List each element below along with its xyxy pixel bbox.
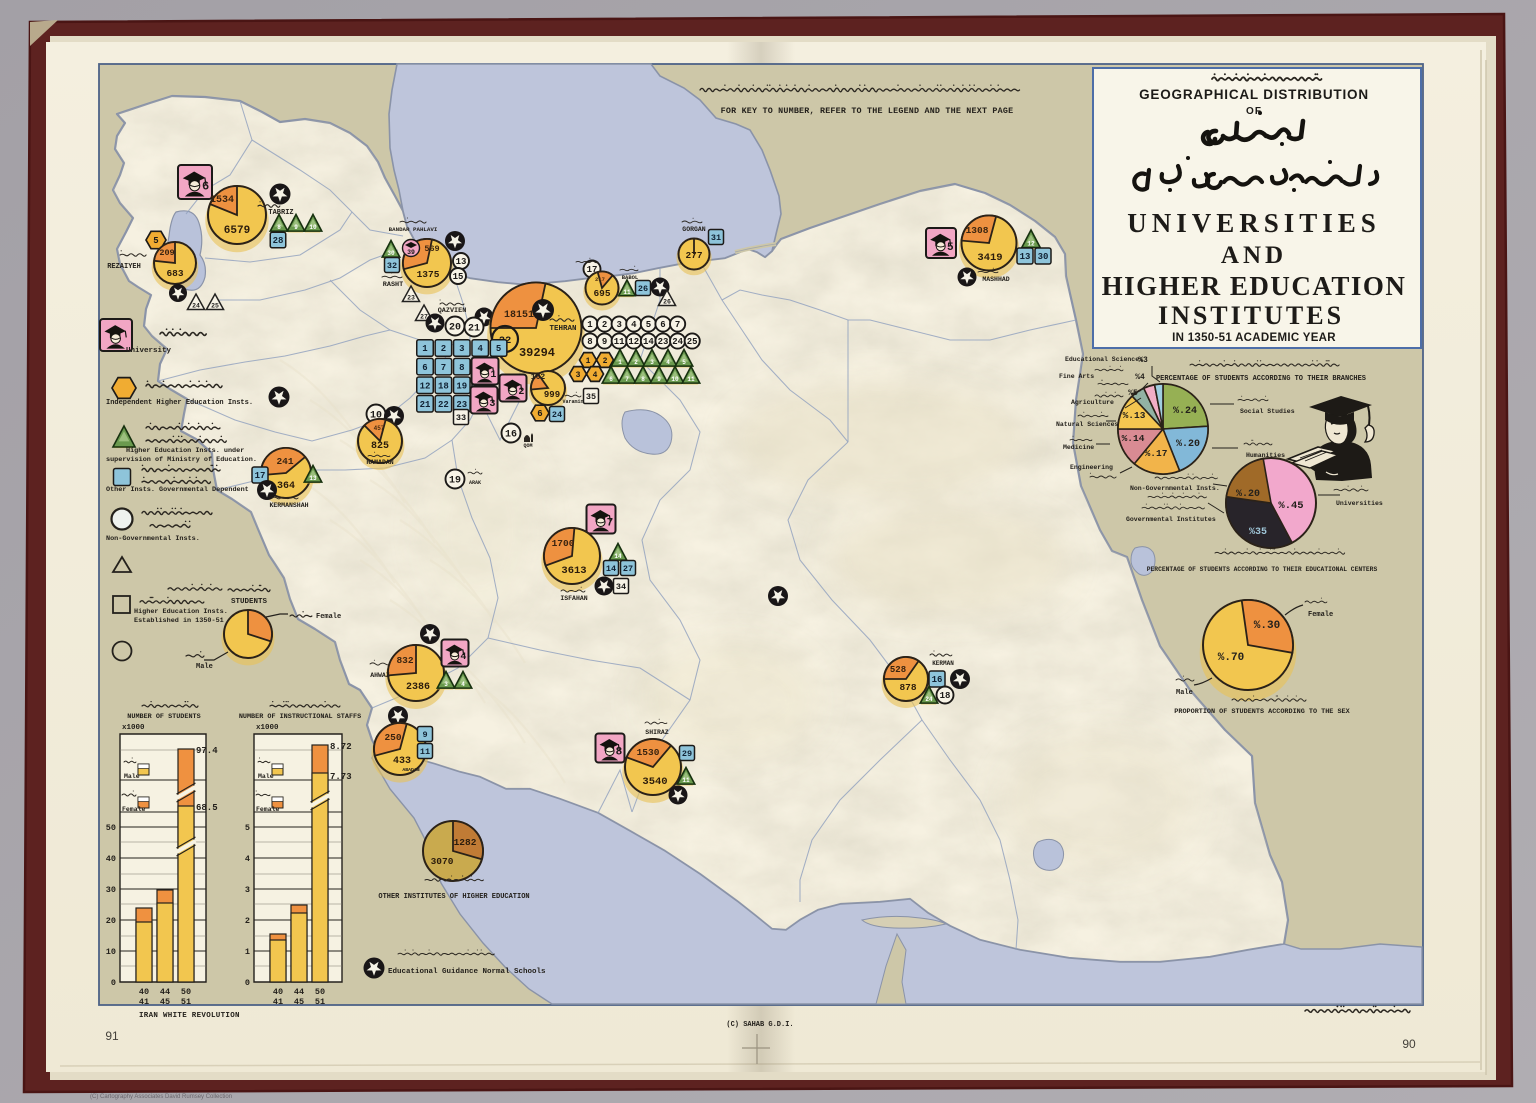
svg-text:6: 6 [537, 409, 542, 419]
svg-text:7: 7 [441, 363, 446, 373]
svg-text:23: 23 [456, 400, 467, 410]
svg-text:%.14: %.14 [1122, 433, 1145, 444]
svg-text:30: 30 [1038, 252, 1049, 262]
svg-text:6579: 6579 [224, 225, 250, 237]
svg-text:12: 12 [1027, 241, 1035, 248]
svg-text:Educational Guidance Normal Sc: Educational Guidance Normal Schools [388, 968, 546, 976]
svg-text:8: 8 [641, 376, 645, 383]
svg-text:33: 33 [456, 413, 466, 423]
svg-text:364: 364 [277, 481, 295, 492]
svg-text:2: 2 [634, 359, 638, 366]
svg-text:1375: 1375 [417, 269, 440, 280]
svg-text:QOM: QOM [523, 443, 532, 449]
svg-text:%5: %5 [1128, 389, 1138, 398]
svg-text:24: 24 [672, 337, 683, 347]
svg-text:7: 7 [675, 320, 680, 330]
svg-text:1530: 1530 [637, 747, 660, 758]
svg-text:1308: 1308 [966, 225, 989, 236]
svg-text:3: 3 [576, 371, 581, 380]
svg-text:1: 1 [618, 359, 622, 366]
svg-text:41: 41 [273, 997, 283, 1007]
svg-text:%.30: %.30 [1254, 620, 1280, 632]
svg-text:6: 6 [609, 376, 613, 383]
svg-text:878: 878 [899, 682, 916, 693]
svg-text:Female: Female [1308, 611, 1333, 619]
svg-text:6: 6 [202, 180, 209, 194]
svg-text:KERMANSHAH: KERMANSHAH [269, 502, 308, 509]
svg-text:0: 0 [245, 978, 250, 988]
svg-text:277: 277 [685, 250, 702, 261]
svg-text:Female: Female [256, 806, 280, 813]
svg-text:2386: 2386 [406, 682, 430, 693]
svg-text:1282: 1282 [454, 837, 477, 848]
svg-text:20: 20 [449, 323, 461, 334]
svg-text:REZAIYEH: REZAIYEH [107, 263, 141, 271]
svg-text:18151: 18151 [504, 310, 534, 321]
svg-text:Non-Governmental Insts.: Non-Governmental Insts. [106, 535, 200, 543]
svg-text:INSTITUTES: INSTITUTES [1158, 301, 1344, 330]
svg-text:%4: %4 [1135, 373, 1145, 382]
svg-text:7: 7 [607, 518, 614, 530]
svg-text:12: 12 [420, 381, 431, 391]
svg-text:8.72: 8.72 [330, 742, 352, 752]
svg-text:OTHER INSTITUTES OF HIGHER EDU: OTHER INSTITUTES OF HIGHER EDUCATION [378, 893, 529, 901]
svg-text:UNIVERSITIES: UNIVERSITIES [1127, 208, 1381, 238]
svg-text:3: 3 [444, 681, 448, 688]
svg-text:825: 825 [371, 441, 389, 452]
svg-text:GORGAN: GORGAN [682, 226, 706, 233]
svg-text:Universities: Universities [1336, 500, 1383, 507]
svg-text:11: 11 [623, 289, 631, 296]
svg-text:Educational Sciences: Educational Sciences [1065, 356, 1143, 363]
svg-text:2: 2 [603, 357, 608, 366]
svg-text:0: 0 [111, 978, 116, 988]
svg-text:8: 8 [459, 363, 464, 373]
svg-text:Higher Education Insts. under: Higher Education Insts. under [126, 447, 244, 455]
svg-text:4: 4 [631, 320, 637, 330]
svg-text:26: 26 [638, 284, 648, 294]
svg-text:BANDAR PAHLAVI: BANDAR PAHLAVI [389, 226, 438, 233]
svg-text:Fine Arts: Fine Arts [1059, 373, 1094, 380]
svg-text:TABRIZ: TABRIZ [268, 209, 293, 217]
svg-text:11: 11 [682, 777, 690, 784]
svg-text:433: 433 [393, 756, 411, 767]
svg-text:1: 1 [490, 370, 496, 381]
svg-text:25: 25 [687, 337, 698, 347]
svg-text:241: 241 [276, 456, 293, 467]
svg-text:23: 23 [407, 295, 415, 302]
svg-text:Engineering: Engineering [1070, 464, 1113, 471]
svg-text:2: 2 [441, 344, 446, 354]
svg-text:44: 44 [160, 987, 170, 997]
svg-text:19: 19 [456, 381, 467, 391]
svg-text:11: 11 [420, 747, 430, 757]
svg-text:3070: 3070 [431, 856, 454, 867]
svg-text:GEOGRAPHICAL DISTRIBUTION: GEOGRAPHICAL DISTRIBUTION [1139, 87, 1369, 102]
svg-text:23: 23 [658, 337, 669, 347]
svg-text:Medicine: Medicine [1063, 444, 1094, 451]
svg-text:12: 12 [628, 337, 639, 347]
svg-text:457: 457 [374, 425, 385, 432]
svg-text:3540: 3540 [642, 776, 667, 788]
svg-text:FOR KEY TO NUMBER, REFER TO TH: FOR KEY TO NUMBER, REFER TO THE LEGEND A… [721, 106, 1014, 116]
svg-text:HAMADAN: HAMADAN [366, 459, 393, 466]
svg-text:(C) Cartography Associates Da: (C) Cartography Associates David Rumsey … [90, 1094, 232, 1100]
svg-text:24: 24 [552, 410, 562, 420]
svg-text:14: 14 [643, 337, 654, 347]
svg-text:supervision of Ministry of Edu: supervision of Ministry of Education. [106, 456, 257, 464]
svg-text:Female: Female [122, 806, 146, 813]
svg-text:Varamin: Varamin [562, 399, 583, 405]
svg-text:4: 4 [593, 371, 598, 380]
svg-text:28: 28 [273, 236, 284, 246]
svg-text:3419: 3419 [977, 252, 1002, 264]
svg-text:9: 9 [294, 224, 298, 231]
svg-text:Independent Higher Education I: Independent Higher Education Insts. [106, 399, 253, 407]
svg-text:999: 999 [544, 390, 560, 400]
svg-text:683: 683 [166, 268, 183, 279]
svg-text:University: University [126, 347, 172, 355]
svg-text:11: 11 [687, 376, 695, 383]
svg-text:x1000: x1000 [256, 724, 279, 732]
svg-text:4: 4 [666, 359, 670, 366]
svg-text:(C) SAHAB G.D.I.: (C) SAHAB G.D.I. [726, 1021, 793, 1029]
svg-text:16: 16 [932, 675, 943, 685]
svg-text:Male: Male [124, 773, 140, 780]
svg-text:Non-Governmental Insts.: Non-Governmental Insts. [1130, 485, 1220, 492]
svg-text:1: 1 [587, 320, 593, 330]
svg-text:31: 31 [711, 233, 721, 243]
svg-text:1: 1 [245, 947, 250, 957]
svg-text:209: 209 [159, 248, 174, 258]
svg-text:35: 35 [586, 392, 596, 402]
svg-text:QAZVIEN: QAZVIEN [438, 307, 467, 315]
svg-text:PERCENTAGE OF STUDENTS ACCORDI: PERCENTAGE OF STUDENTS ACCORDING TO THEI… [1147, 566, 1378, 573]
svg-text:34: 34 [616, 582, 626, 592]
svg-text:13: 13 [1020, 252, 1031, 262]
svg-text:50: 50 [106, 823, 116, 833]
svg-text:18: 18 [438, 381, 449, 391]
svg-text:Natural Sciences: Natural Sciences [1056, 421, 1119, 428]
svg-text:4: 4 [245, 854, 250, 864]
svg-text:Social Studies: Social Studies [1240, 408, 1295, 415]
svg-text:14: 14 [614, 553, 622, 560]
svg-text:15: 15 [453, 272, 464, 282]
svg-text:30: 30 [387, 250, 395, 257]
svg-text:%.13: %.13 [1123, 410, 1146, 421]
svg-text:3: 3 [616, 320, 621, 330]
svg-text:50: 50 [181, 987, 191, 997]
svg-text:1534: 1534 [210, 195, 234, 206]
svg-text:NUMBER OF STUDENTS: NUMBER OF STUDENTS [127, 713, 200, 721]
svg-text:AHWAZ: AHWAZ [370, 672, 390, 679]
svg-text:SHIRAZ: SHIRAZ [645, 729, 669, 736]
svg-text:162: 162 [531, 373, 546, 382]
svg-text:5: 5 [682, 359, 686, 366]
svg-text:7: 7 [625, 376, 629, 383]
svg-text:40: 40 [139, 987, 149, 997]
svg-text:%.20: %.20 [1176, 439, 1200, 450]
svg-text:51: 51 [181, 997, 191, 1007]
svg-text:695: 695 [593, 288, 610, 299]
svg-text:KERMAN: KERMAN [932, 660, 954, 667]
svg-text:90: 90 [1402, 1037, 1416, 1051]
svg-text:ISFAHAN: ISFAHAN [560, 595, 587, 602]
svg-text:%.45: %.45 [1278, 500, 1303, 512]
svg-text:Male: Male [258, 773, 274, 780]
svg-text:16: 16 [505, 430, 517, 441]
svg-text:569: 569 [424, 244, 439, 254]
svg-text:5: 5 [496, 344, 501, 354]
svg-text:30: 30 [106, 885, 116, 895]
svg-text:45: 45 [294, 997, 304, 1007]
svg-text:68.5: 68.5 [196, 803, 218, 813]
svg-text:%.20: %.20 [1236, 489, 1260, 500]
svg-text:40: 40 [273, 987, 283, 997]
svg-text:6: 6 [422, 363, 427, 373]
svg-text:3613: 3613 [561, 565, 586, 577]
svg-text:5: 5 [153, 236, 158, 246]
svg-text:91: 91 [105, 1029, 119, 1043]
svg-text:4: 4 [477, 344, 483, 354]
svg-text:13: 13 [309, 475, 317, 482]
svg-text:25: 25 [211, 303, 219, 310]
svg-text:45: 45 [160, 997, 170, 1007]
svg-text:44: 44 [294, 987, 304, 997]
svg-text:13: 13 [456, 257, 467, 267]
svg-text:5: 5 [646, 320, 651, 330]
svg-text:%.24: %.24 [1173, 406, 1197, 417]
svg-text:19: 19 [449, 476, 461, 487]
svg-text:24: 24 [925, 696, 933, 703]
svg-text:5: 5 [947, 242, 954, 254]
svg-text:528: 528 [890, 665, 906, 675]
svg-text:Other Insts. Governmental Dep: Other Insts. Governmental Dependent [106, 486, 249, 494]
svg-text:8: 8 [616, 747, 623, 759]
svg-text:3: 3 [489, 399, 495, 410]
svg-text:AND: AND [1221, 242, 1287, 269]
svg-text:3: 3 [459, 344, 464, 354]
svg-text:8: 8 [587, 337, 592, 347]
svg-text:RASHT: RASHT [383, 281, 403, 289]
svg-text:IRAN WHITE REVOLUTION: IRAN WHITE REVOLUTION [139, 1012, 240, 1020]
svg-text:4: 4 [460, 652, 466, 663]
svg-text:22: 22 [438, 400, 449, 410]
svg-text:10: 10 [671, 376, 679, 383]
svg-text:ABADAN: ABADAN [402, 767, 419, 773]
svg-text:2: 2 [245, 916, 250, 926]
svg-text:24: 24 [192, 303, 200, 310]
svg-text:Male: Male [1176, 689, 1193, 697]
svg-text:97.4: 97.4 [196, 746, 218, 756]
svg-text:1: 1 [586, 357, 591, 366]
svg-text:3: 3 [650, 359, 654, 366]
svg-text:MASHHAD: MASHHAD [982, 276, 1009, 283]
svg-text:32: 32 [387, 261, 397, 271]
svg-text:832: 832 [396, 655, 413, 666]
svg-text:PERCENTAGE OF STUDENTS ACCORDI: PERCENTAGE OF STUDENTS ACCORDING TO THEI… [1156, 375, 1366, 383]
svg-text:250: 250 [384, 732, 401, 743]
svg-text:39294: 39294 [519, 346, 555, 360]
svg-text:STUDENTS: STUDENTS [231, 598, 268, 606]
svg-text:29: 29 [682, 749, 692, 759]
svg-text:Higher Education Insts.: Higher Education Insts. [134, 608, 228, 616]
svg-text:8: 8 [277, 224, 281, 231]
svg-text:14: 14 [606, 564, 616, 574]
svg-text:Governmental Institutes: Governmental Institutes [1126, 516, 1216, 523]
svg-text:40: 40 [106, 854, 116, 864]
svg-text:9: 9 [422, 730, 427, 740]
svg-text:ARAK: ARAK [469, 480, 481, 486]
svg-text:PROPORTION OF STUDENTS ACCORDI: PROPORTION OF STUDENTS ACCORDING TO THE … [1174, 708, 1350, 716]
svg-text:217: 217 [595, 276, 605, 283]
svg-text:20: 20 [106, 916, 116, 926]
svg-text:Agriculture: Agriculture [1071, 399, 1114, 406]
svg-text:TEHRAN: TEHRAN [549, 325, 576, 333]
svg-text:9: 9 [602, 337, 607, 347]
svg-text:7.73: 7.73 [330, 772, 352, 782]
svg-text:10: 10 [106, 947, 116, 957]
svg-text:39: 39 [407, 249, 415, 256]
svg-text:11: 11 [614, 337, 625, 347]
svg-text:Established in 1350-51: Established in 1350-51 [134, 617, 224, 625]
svg-text:Male: Male [196, 663, 213, 671]
svg-text:Female: Female [316, 613, 341, 621]
svg-text:1700: 1700 [552, 538, 575, 549]
svg-text:1: 1 [422, 344, 428, 354]
svg-text:4: 4 [461, 681, 465, 688]
svg-text:18: 18 [940, 691, 951, 701]
svg-text:9: 9 [657, 376, 661, 383]
svg-text:HIGHER EDUCATION: HIGHER EDUCATION [1102, 271, 1407, 301]
svg-text:10: 10 [309, 224, 317, 231]
svg-text:3: 3 [245, 885, 250, 895]
svg-text:%.70: %.70 [1218, 652, 1244, 664]
svg-text:2: 2 [602, 320, 607, 330]
svg-text:IN 1350-51 ACADEMIC YEAR: IN 1350-51 ACADEMIC YEAR [1172, 332, 1336, 344]
svg-text:2: 2 [518, 387, 524, 398]
svg-text:27: 27 [623, 564, 633, 574]
svg-text:21: 21 [420, 400, 431, 410]
svg-text:51: 51 [315, 997, 325, 1007]
svg-text:6: 6 [660, 320, 665, 330]
svg-text:26: 26 [663, 299, 671, 306]
svg-text:%3: %3 [1138, 356, 1148, 365]
svg-text:17: 17 [255, 471, 266, 481]
svg-text:50: 50 [315, 987, 325, 997]
svg-text:x1000: x1000 [122, 724, 145, 732]
svg-text:NUMBER OF INSTRUCTIONAL STAFFS: NUMBER OF INSTRUCTIONAL STAFFS [239, 713, 361, 721]
svg-text:41: 41 [139, 997, 149, 1007]
svg-text:5: 5 [245, 823, 250, 833]
svg-text:%35: %35 [1249, 527, 1267, 538]
svg-text:%.17: %.17 [1145, 448, 1168, 459]
svg-text:21: 21 [468, 324, 480, 335]
